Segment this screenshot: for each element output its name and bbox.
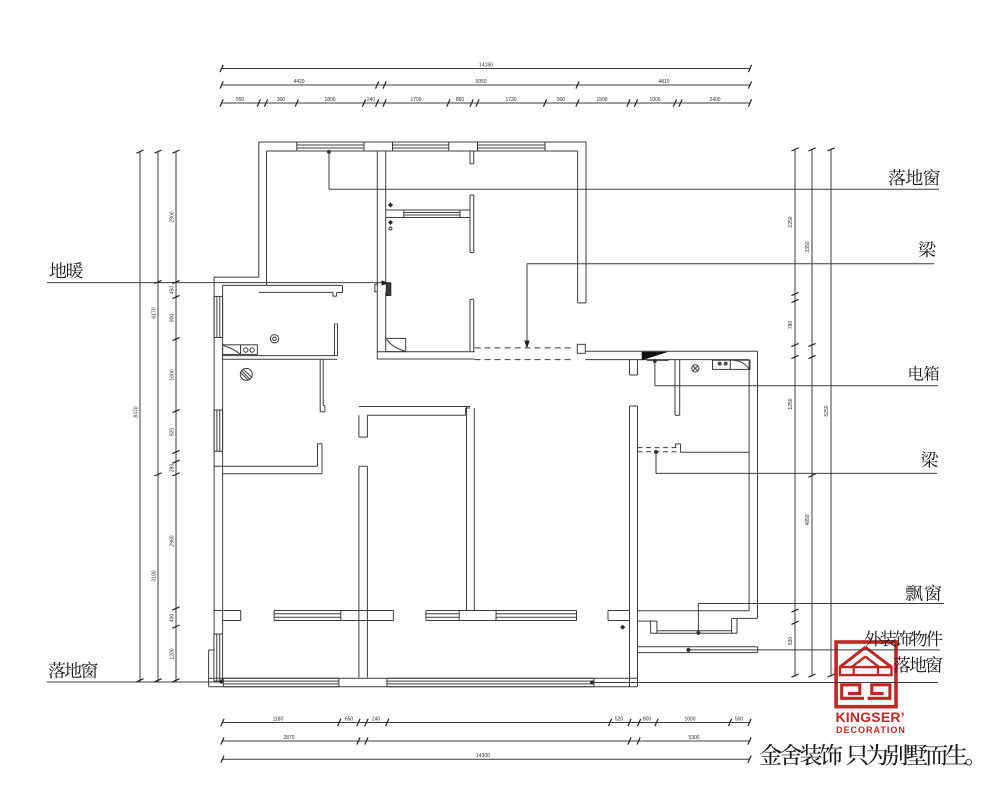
svg-text:6170: 6170	[152, 307, 158, 318]
svg-text:4420: 4420	[293, 79, 304, 85]
svg-text:550: 550	[236, 97, 245, 103]
svg-text:400: 400	[170, 614, 176, 623]
svg-text:2870: 2870	[283, 735, 294, 741]
svg-text:3100: 3100	[152, 570, 158, 581]
svg-text:4850: 4850	[805, 514, 811, 525]
svg-text:2250: 2250	[788, 216, 794, 227]
svg-text:520: 520	[615, 717, 624, 723]
svg-text:450: 450	[170, 286, 176, 295]
svg-text:14180: 14180	[479, 63, 493, 69]
svg-text:920: 920	[170, 428, 176, 437]
svg-text:530: 530	[788, 637, 794, 646]
svg-text:1180: 1180	[273, 717, 284, 723]
svg-text:1500: 1500	[596, 97, 607, 103]
svg-text:1600: 1600	[170, 369, 176, 380]
svg-text:900: 900	[557, 97, 566, 103]
svg-text:3350: 3350	[805, 241, 811, 252]
svg-text:8470: 8470	[134, 406, 140, 417]
svg-text:650: 650	[345, 717, 354, 723]
svg-text:4810: 4810	[658, 79, 669, 85]
svg-text:14300: 14300	[476, 753, 490, 759]
svg-text:1200: 1200	[170, 648, 176, 659]
svg-text:1000: 1000	[649, 97, 660, 103]
svg-text:1800: 1800	[324, 97, 335, 103]
svg-text:KINGSER’: KINGSER’	[836, 709, 905, 725]
svg-text:240: 240	[367, 97, 376, 103]
svg-text:500: 500	[735, 717, 744, 723]
svg-text:DECORATION: DECORATION	[836, 725, 906, 735]
svg-text:780: 780	[788, 321, 794, 330]
svg-text:1700: 1700	[410, 97, 421, 103]
svg-text:2400: 2400	[709, 97, 720, 103]
svg-text:8250: 8250	[824, 405, 830, 416]
svg-text:300: 300	[277, 97, 286, 103]
svg-text:2900: 2900	[170, 211, 176, 222]
svg-text:5950: 5950	[475, 79, 486, 85]
svg-text:2980: 2980	[170, 535, 176, 546]
svg-text:1250: 1250	[788, 398, 794, 409]
svg-text:860: 860	[456, 97, 465, 103]
svg-text:240: 240	[372, 717, 381, 723]
svg-text:280: 280	[170, 464, 176, 473]
svg-text:800: 800	[643, 717, 652, 723]
svg-text:1730: 1730	[505, 97, 516, 103]
svg-text:900: 900	[170, 314, 176, 323]
svg-text:1000: 1000	[684, 717, 695, 723]
svg-text:5300: 5300	[688, 735, 699, 741]
